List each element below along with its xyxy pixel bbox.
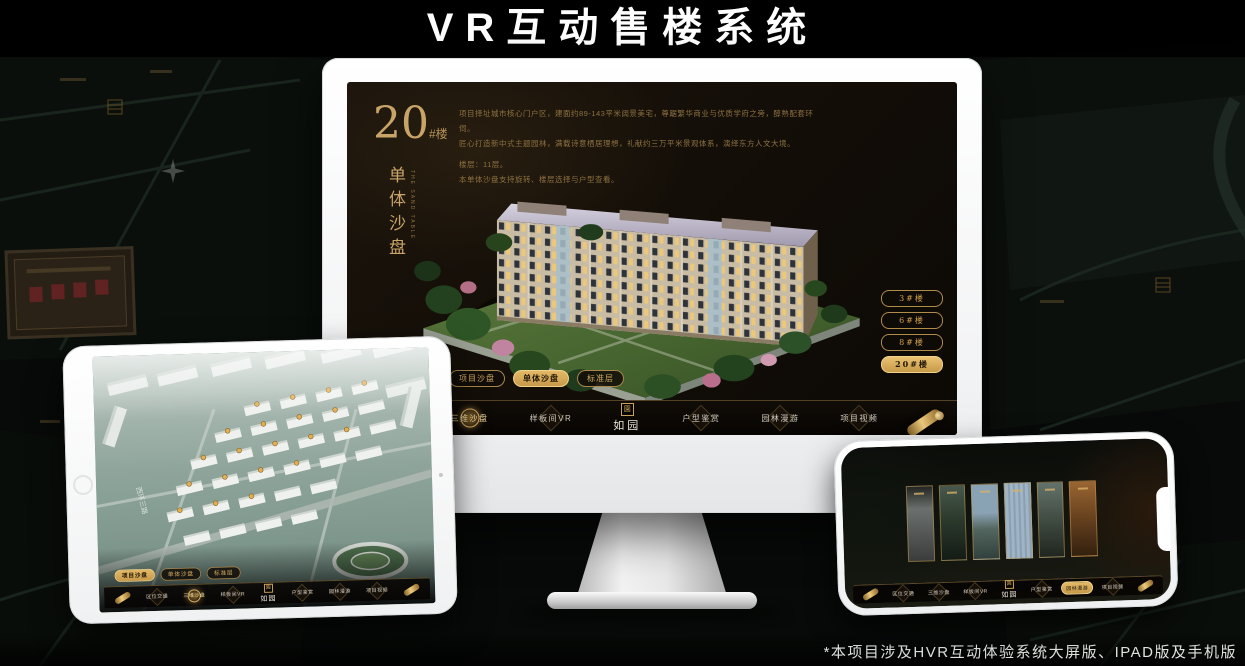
nav-item-garden-tour[interactable]: 园林漫游 — [1066, 584, 1088, 592]
nav-item-3d-sandtable[interactable]: 三维沙盘 — [451, 413, 489, 424]
building-model — [405, 134, 875, 402]
logo-text: 如园 — [260, 593, 276, 603]
floor-button-20[interactable]: 20#楼 — [881, 356, 943, 373]
seal-icon: 園 — [1004, 580, 1013, 589]
nav-item-project-video[interactable]: 项目视频 — [1102, 583, 1124, 591]
brand-logo: 園 如园 — [260, 583, 277, 603]
gallery-panel[interactable] — [906, 485, 935, 562]
plaque-decoration — [6, 248, 135, 338]
nav-item-floorplans[interactable]: 户型鉴赏 — [291, 589, 313, 597]
monitor-base — [547, 592, 757, 609]
view-tabs: 项目沙盘 单体沙盘 标准层 — [449, 370, 624, 387]
gallery-panel[interactable] — [1069, 480, 1098, 557]
gallery-panel[interactable] — [971, 483, 1000, 560]
nav-item-garden-tour[interactable]: 园林漫游 — [329, 588, 351, 596]
nav-item-floorplans[interactable]: 户型鉴赏 — [682, 413, 720, 424]
tab-project-sandtable[interactable]: 项目沙盘 — [449, 370, 505, 387]
page-root: VR互动售楼系统 20#楼 单体沙盘 THE SAND TABLE 项目择址城市… — [0, 0, 1245, 666]
phone-screen: 区位交通 三维沙盘 样板间VR 園 如园 户型鉴赏 园林漫游 项目视频 — [841, 438, 1172, 609]
nav-item-showroom-vr[interactable]: 样板间VR — [530, 413, 573, 424]
page-title: VR互动售楼系统 — [0, 0, 1245, 56]
scroll-icon[interactable] — [862, 587, 880, 601]
brand-logo: 園 如园 — [613, 403, 641, 433]
scene-gallery — [906, 480, 1098, 562]
gallery-panel[interactable] — [938, 484, 967, 561]
tab-standard-floor[interactable]: 标准层 — [207, 566, 241, 579]
seal-icon: 園 — [264, 583, 273, 592]
nav-item-showroom-vr[interactable]: 样板间VR — [963, 587, 988, 595]
floor-button-6[interactable]: 6#楼 — [881, 312, 943, 329]
tablet-screen: 西环三路 项目沙盘 单体沙盘 标准层 区位交通 三维沙盘 样板间VR 園 如园 … — [92, 347, 435, 612]
camera-icon — [439, 473, 443, 477]
seal-icon: 園 — [621, 403, 634, 416]
monitor-stand — [577, 512, 727, 596]
logo-text: 如园 — [1001, 590, 1017, 600]
tablet-device: 西环三路 项目沙盘 单体沙盘 标准层 区位交通 三维沙盘 样板间VR 園 如园 … — [62, 336, 458, 625]
nav-item-project-video[interactable]: 项目视频 — [840, 413, 878, 424]
desc-line: 项目择址城市核心门户区，建面约89-143平米阔景美宅，尊踞繁华商业与优质学府之… — [459, 106, 827, 136]
phone-nav-bar: 区位交通 三维沙盘 样板间VR 園 如园 户型鉴赏 园林漫游 项目视频 — [853, 575, 1163, 604]
nav-item-showroom-vr[interactable]: 样板间VR — [221, 590, 246, 598]
tab-single-sandtable[interactable]: 单体沙盘 — [513, 370, 569, 387]
tab-standard-floor[interactable]: 标准层 — [577, 370, 624, 387]
scroll-icon[interactable] — [114, 590, 132, 604]
tab-single-sandtable[interactable]: 单体沙盘 — [161, 567, 202, 580]
nav-item-project-video[interactable]: 项目视频 — [366, 586, 388, 594]
floor-button-group: 3#楼 6#楼 8#楼 20#楼 — [881, 290, 943, 373]
nav-item-garden-tour[interactable]: 园林漫游 — [761, 413, 799, 424]
brand-logo: 園 如园 — [1001, 580, 1018, 600]
phone-device: 区位交通 三维沙盘 样板间VR 園 如园 户型鉴赏 园林漫游 项目视频 — [833, 431, 1178, 617]
scroll-icon[interactable] — [1137, 579, 1155, 593]
home-button[interactable] — [73, 475, 94, 496]
nav-item-location[interactable]: 区位交通 — [892, 589, 914, 597]
floor-button-3[interactable]: 3#楼 — [881, 290, 943, 307]
phone-notch — [1156, 486, 1171, 550]
nav-item-3d-sandtable[interactable]: 三维沙盘 — [183, 592, 205, 600]
logo-text: 如园 — [613, 417, 641, 433]
floor-button-8[interactable]: 8#楼 — [881, 334, 943, 351]
nav-item-location[interactable]: 区位交通 — [146, 593, 168, 601]
gallery-panel[interactable] — [1004, 482, 1033, 559]
nav-item-3d-sandtable[interactable]: 三维沙盘 — [928, 588, 950, 596]
gallery-panel[interactable] — [1036, 481, 1065, 558]
scroll-icon[interactable] — [403, 582, 421, 596]
nav-item-floorplans[interactable]: 户型鉴赏 — [1031, 585, 1053, 593]
footnote: *本项目涉及HVR互动体验系统大屏版、IPAD版及手机版 — [824, 641, 1237, 662]
tab-project-sandtable[interactable]: 项目沙盘 — [114, 569, 155, 582]
